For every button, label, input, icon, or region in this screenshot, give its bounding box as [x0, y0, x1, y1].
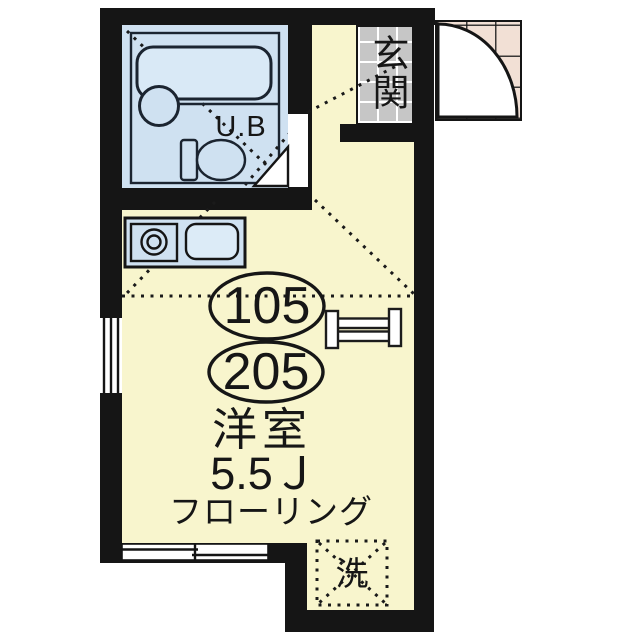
toilet-tank [181, 140, 197, 180]
washbasin [140, 87, 179, 126]
laundry-label: 洗 [322, 557, 382, 590]
unit-bath-door-opening [288, 114, 308, 187]
unit-bath-door-swing [254, 147, 288, 186]
unit-number-205: 205 [209, 348, 323, 396]
room-size-label: 5.5Ｊ [164, 451, 364, 496]
table-icon [326, 309, 401, 348]
flooring-label: フローリング [120, 495, 422, 528]
room-type-label: 洋室 [162, 407, 362, 453]
left-wall-window [100, 318, 122, 393]
unit-bath-label: U.B [206, 112, 276, 142]
toilet-bowl [197, 140, 245, 180]
kitchen-sink [186, 224, 238, 259]
bottom-sliding-window [122, 544, 268, 560]
unit-number-105: 105 [210, 282, 324, 330]
entrance-door-swing [438, 24, 517, 117]
dotted-line-room-diagonal [315, 200, 414, 294]
entrance-label: 玄関 [366, 34, 408, 118]
floor-plan: U.B 玄関 105 205 洋室 5.5Ｊ フローリング 洗 [0, 0, 640, 640]
